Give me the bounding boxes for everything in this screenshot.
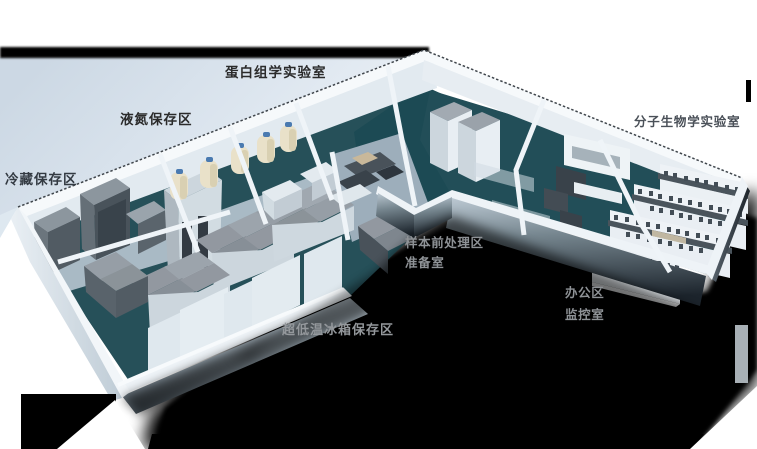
svg-text:分子生物学实验室: 分子生物学实验室 [634, 114, 740, 129]
svg-text:蛋白组学实验室: 蛋白组学实验室 [225, 64, 327, 80]
svg-text:液氮保存区: 液氮保存区 [120, 111, 193, 127]
svg-text:准备室: 准备室 [405, 255, 444, 270]
svg-text:超低温冰箱保存区: 超低温冰箱保存区 [282, 322, 394, 337]
svg-text:样本前处理区: 样本前处理区 [405, 235, 484, 250]
svg-text:冷藏保存区: 冷藏保存区 [5, 171, 78, 187]
svg-text:监控室: 监控室 [565, 307, 604, 322]
svg-text:办公区: 办公区 [565, 285, 604, 300]
